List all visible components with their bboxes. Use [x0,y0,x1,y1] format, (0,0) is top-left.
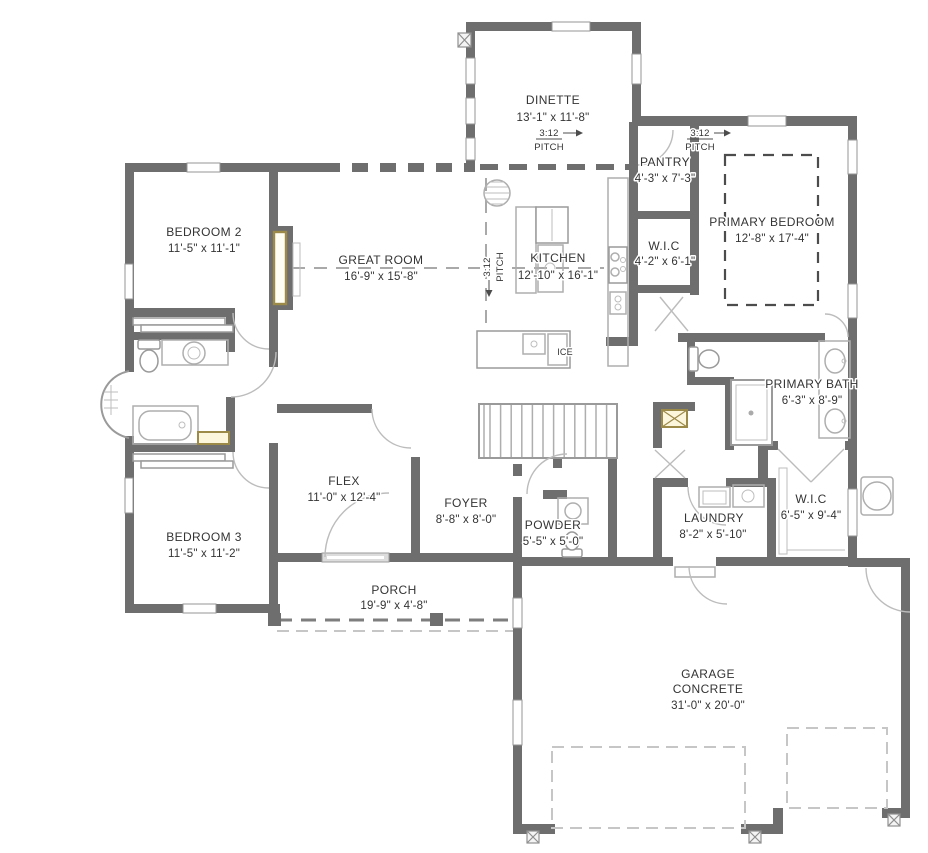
bathtub-shape [139,411,191,440]
pitch-marker-dinette: 3:12 PITCH [534,128,583,153]
window [848,140,857,174]
room-label-wic-primary: W.I.C [795,492,826,506]
room-dims-primary-bath: 6'-3" x 8'-9" [782,395,843,407]
toilet-shape [140,350,158,372]
walls-shape [687,377,727,385]
fireplace-shape [293,243,300,296]
room-label-primary-bedroom: PRIMARY BEDROOM [709,215,835,229]
bay-window-shape [101,371,129,438]
room-material-garage: CONCRETE [673,682,744,696]
windows-and-openings-shape [368,163,380,172]
bay-window-shape [104,385,118,415]
bedroom2-closet-door [141,325,233,332]
kitchen-sink-shape [610,292,626,314]
bathtub [133,406,198,444]
porch-post [268,613,281,626]
room-dims-powder: 5'-5" x 5'-0" [523,536,584,548]
wic-double-doors [778,449,844,482]
window [125,478,133,513]
room-label-porch: PORCH [371,583,416,597]
pitch-marker-kitchen-shape: 3:12 [482,257,493,276]
pitch-marker-dinette-shape: PITCH [534,142,564,153]
bathroom-sink-shape [188,347,200,359]
dryer-shape [742,490,754,502]
fireplace-shape [274,232,286,304]
window [748,116,786,126]
bathtub-shape [179,422,185,428]
windows-and-openings-shape [452,163,464,172]
bedroom3-door [233,452,269,488]
room-dims-wic-hall: 4'-2" x 6'-1" [635,256,696,268]
window [466,138,475,160]
walls-shape [716,557,857,566]
staircase [479,404,617,458]
floor-plan: DINETTE 13'-1" x 11'-8" PANTRY 4'-3" x 7… [0,0,928,853]
room-label-bedroom-2: BEDROOM 2 [166,225,242,239]
exterior-pillar [861,477,893,515]
garage-step [675,567,715,577]
pitch-marker-pantry-shape: PITCH [685,142,715,153]
room-dims-foyer: 8'-8" x 8'-0" [436,514,497,526]
toilet [689,347,719,371]
pitch-marker-dinette-shape [576,130,583,137]
window [848,489,857,536]
window [466,58,475,84]
bedroom2-closet-door [133,318,225,325]
room-dims-primary-bedroom: 12'-8" x 17'-4" [735,233,809,245]
walls-shape [901,558,910,818]
room-label-bedroom-3: BEDROOM 3 [166,530,242,544]
room-dims-bedroom-2: 11'-5" x 11'-1" [168,243,240,255]
bathroom-sink [162,340,228,365]
walls-shape [653,478,688,487]
garage-entry-door [689,566,727,604]
toilet [138,340,160,372]
kitchen-sink-shape [615,304,621,310]
windows-and-openings-shape [340,163,352,172]
room-dims-garage: 31'-0" x 20'-0" [671,700,745,712]
bedroom3-closet-door [133,454,225,461]
bedroom2-door [233,313,269,349]
room-label-laundry: LAUNDRY [684,511,744,525]
walls-shape [411,457,420,557]
room-label-garage: GARAGE [681,667,735,681]
toilet-shape [699,350,719,368]
post-marker [888,814,900,826]
tray-ceiling [725,155,818,305]
pitch-marker-dinette-shape: 3:12 [539,128,558,139]
walls-shape [767,478,776,562]
kitchen-sink [610,292,626,314]
walls-shape [638,211,690,219]
room-label-flex: FLEX [328,474,360,488]
window [183,604,216,613]
room-label-primary-bath: PRIMARY BATH [765,377,859,391]
walls-shape [277,553,513,562]
room-dims-porch: 19'-9" x 4'-8" [360,600,427,612]
room-dims-flex: 11'-0" x 12'-4" [308,492,381,504]
post-marker [749,831,761,843]
walls-shape [845,441,857,450]
post-marker [527,831,539,843]
floor-plan-drawing: DINETTE 13'-1" x 11'-8" PANTRY 4'-3" x 7… [0,0,928,853]
room-dims-wic-primary: 6'-5" x 9'-4" [781,510,842,522]
room-dims-dinette: 13'-1" x 11'-8" [517,112,590,124]
walls-shape [638,285,690,293]
vestibule-doors [655,297,688,331]
linen-shelf [198,432,229,444]
porch-post [430,613,443,626]
bay-window [101,371,129,438]
kitchen-sink-shape [615,296,621,302]
toilet-shape [138,340,160,349]
walls-shape [277,404,372,413]
garage-service-door [513,700,522,745]
refrigerator [536,207,568,243]
cooktop-shape [609,247,627,283]
mud-hall-doors [655,450,685,478]
primary-bedroom-door [825,314,848,337]
room-label-wic-hall: W.I.C [648,239,679,253]
kitchen-fixtures-shape [484,182,510,204]
flex-door [372,409,411,448]
toilet-shape [689,347,698,371]
walls-shape [653,487,662,557]
room-label-pantry: PANTRY [640,155,690,169]
room-label-powder: POWDER [525,518,581,532]
window [552,22,590,31]
walls-shape [125,163,473,172]
room-label-dinette: DINETTE [526,93,580,107]
powder-sink-shape [565,503,581,519]
bathroom-sink-shape [183,342,205,364]
window [848,284,857,318]
garage-door-16ft [552,747,745,828]
primary-bath-fixtures [689,341,850,445]
walls-shape [513,497,522,557]
washer-shape [703,491,726,504]
room-label-foyer: FOYER [444,496,487,510]
walls-shape [125,332,228,340]
walls-shape [632,116,857,126]
walls-shape [513,464,522,476]
window [513,598,522,628]
room-label-great-room: GREAT ROOM [339,253,424,267]
walls-shape [269,310,278,367]
window [125,264,133,299]
windows-and-openings-shape [327,556,384,559]
window [187,163,220,172]
exterior-pillar-shape [863,482,891,510]
pitch-marker-pantry-shape: 3:12 [690,128,709,139]
walls-shape [269,443,278,620]
window [632,54,641,84]
garage-door-8ft [787,728,887,808]
attic-access [662,410,687,427]
room-dims-laundry: 8'-2" x 5'-10" [679,529,746,541]
walls-shape [629,122,638,346]
cooktop [609,247,627,283]
post-marker [458,33,471,47]
pitch-marker-kitchen-shape: PITCH [495,252,506,282]
walls-shape [513,557,673,566]
walls-shape [125,308,233,317]
dryer [733,485,764,507]
walls-shape [741,824,783,834]
island [477,331,570,368]
walls-shape [678,333,825,342]
dryer-shape [733,485,764,507]
room-dims-kitchen: 12'-10" x 16'-1" [518,270,598,282]
room-dims-pantry: 4'-3" x 7'-3" [635,173,696,185]
walls-shape [848,558,910,567]
window [466,98,475,124]
room-dims-bedroom-3: 11'-5" x 11'-2" [168,548,240,560]
bathroom-sink-shape [162,340,228,365]
windows-and-openings-shape [424,163,436,172]
windows-and-openings-shape [396,163,408,172]
pitch-marker-pantry-shape [724,130,731,137]
hall-bath-fixtures [133,340,229,444]
shower-shape [749,411,754,416]
walls-shape [606,337,638,346]
washer [699,487,730,507]
room-label-kitchen: KITCHEN [530,251,585,265]
ice-maker-label: ICE [557,347,573,357]
room-dims-great-room: 16'-9" x 15'-8" [344,271,418,283]
bedroom3-closet-door [141,461,233,468]
